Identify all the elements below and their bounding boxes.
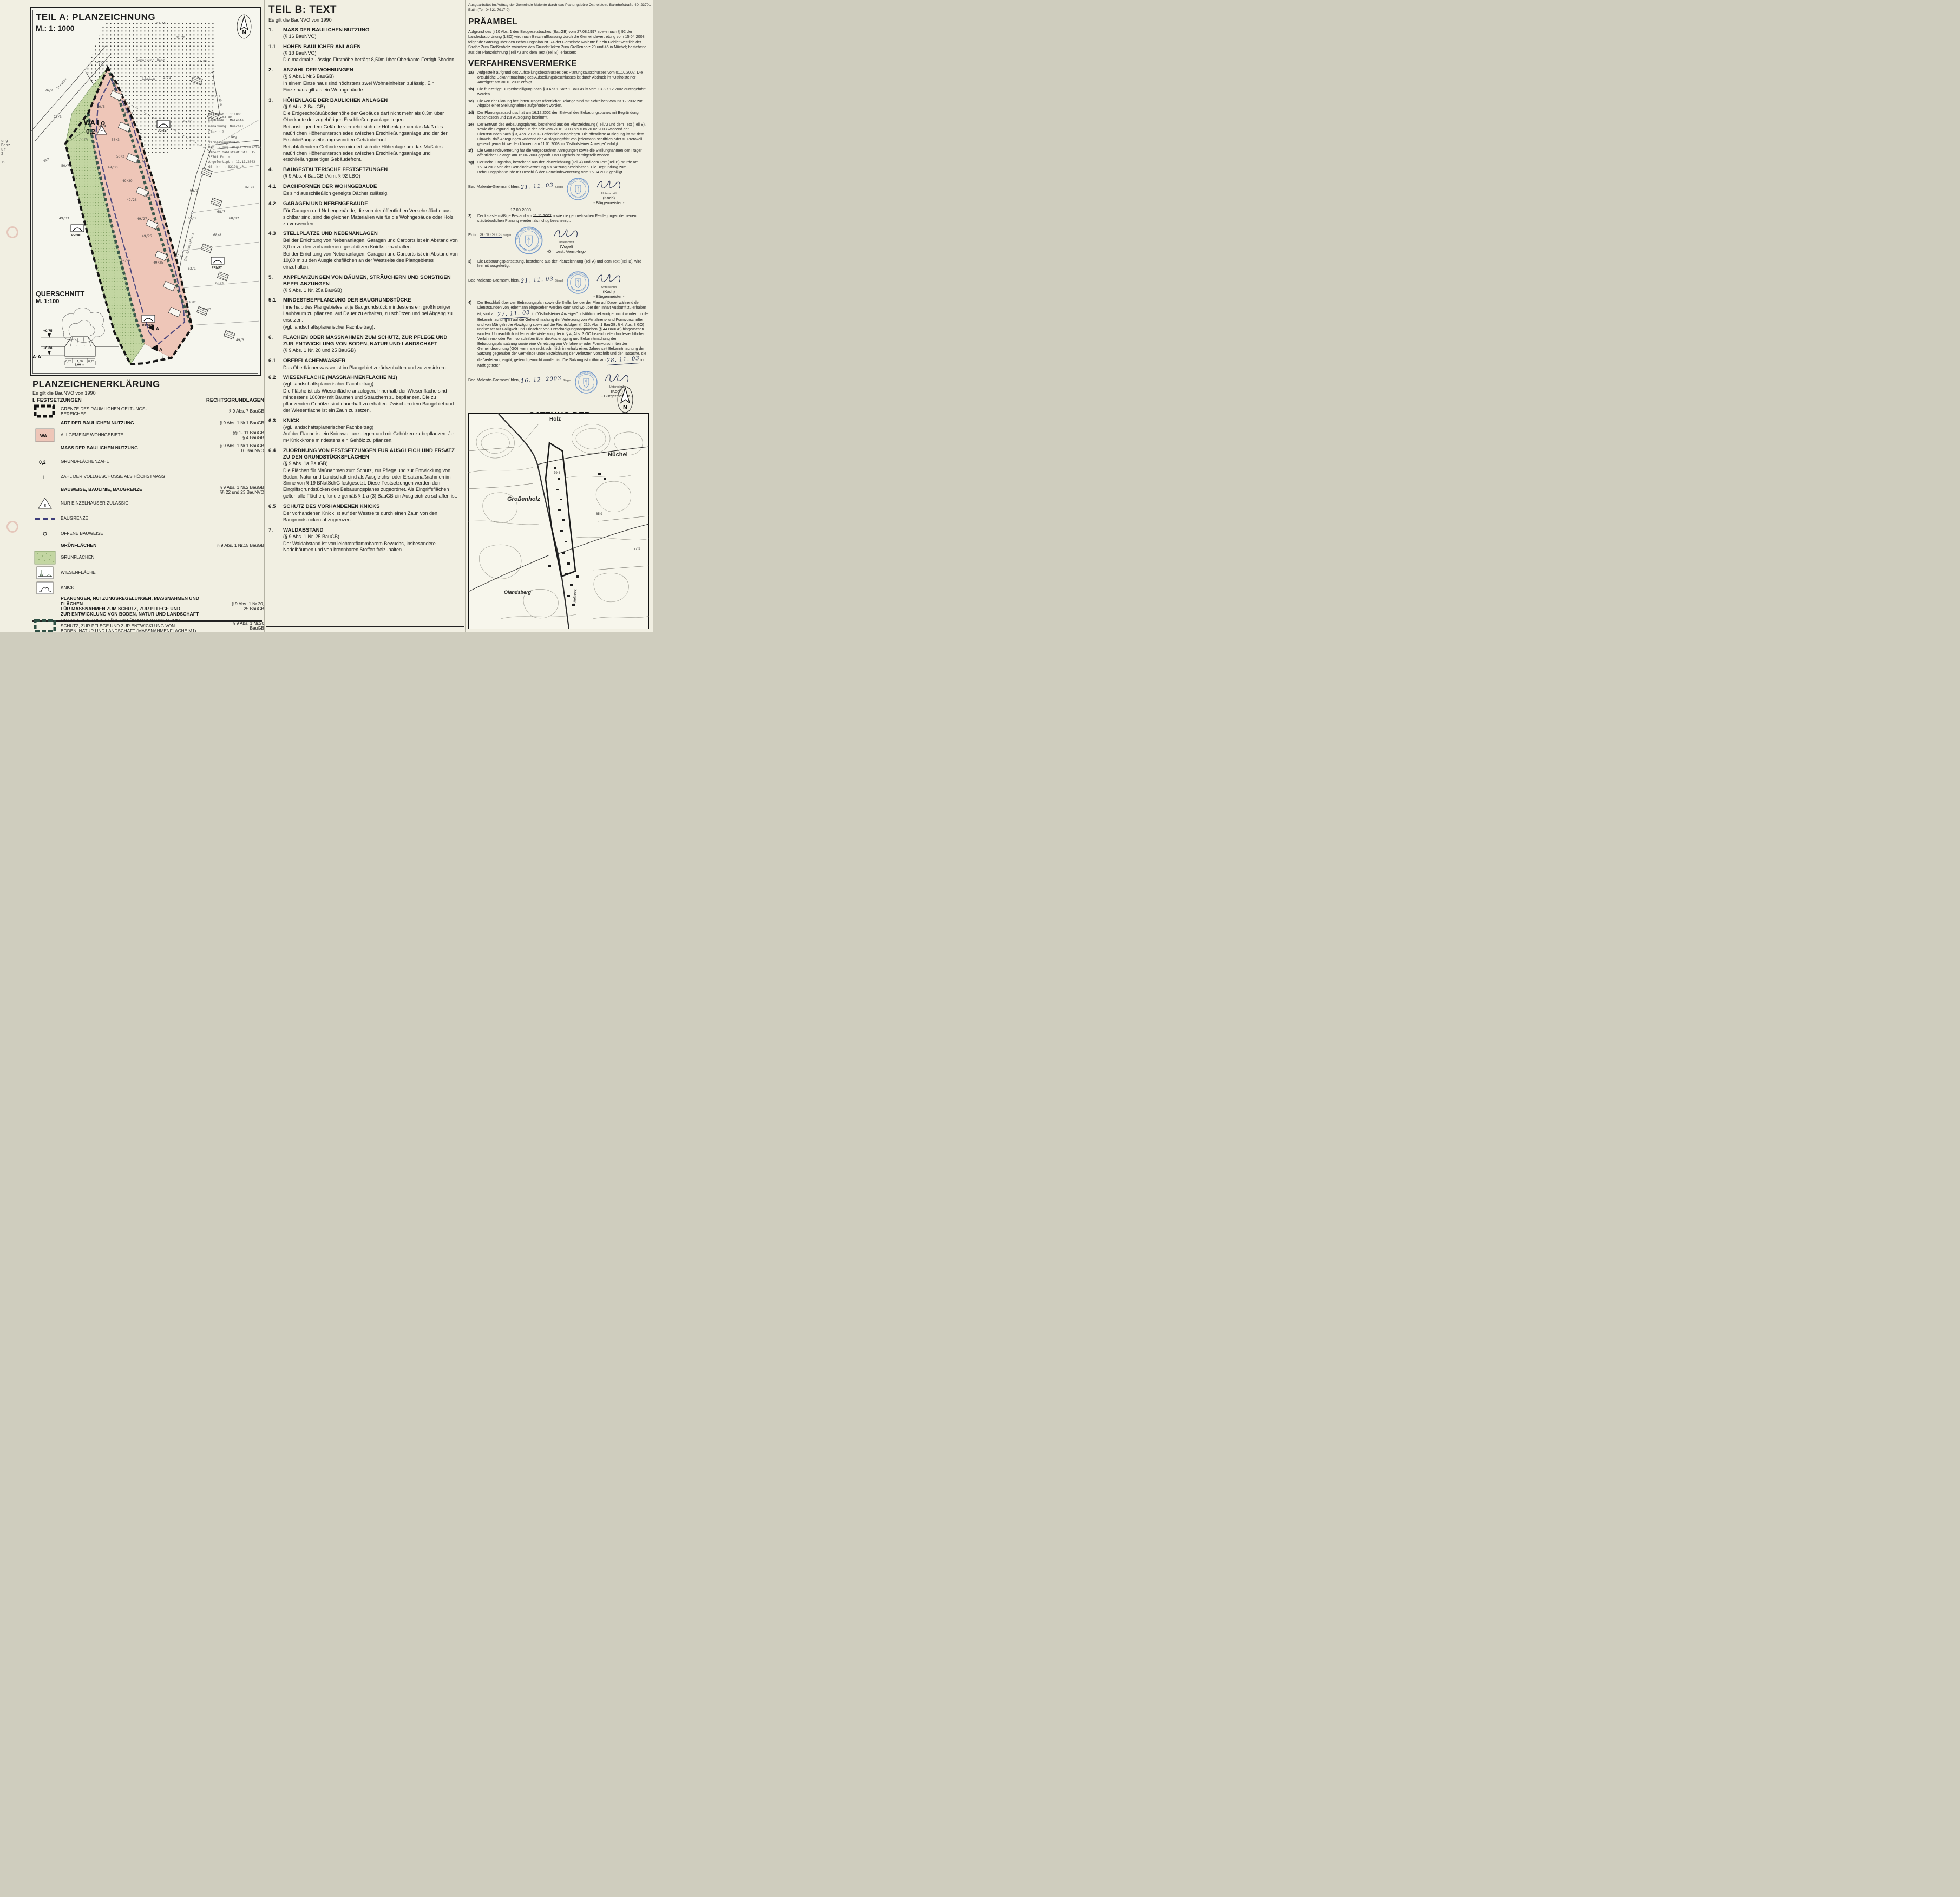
section-number: 6.5	[268, 503, 283, 524]
section-legal-ref: (§ 9 Abs. 4 BauGB i.V.m. § 92 LBO)	[283, 173, 459, 180]
section-body: Der Waldabstand ist von leichtentflammba…	[283, 541, 459, 554]
legend-label: ALLGEMEINE WOHNGEBIETE	[61, 433, 204, 437]
binder-hole	[6, 226, 18, 238]
section-legal-ref: (§ 18 BauNVO)	[283, 50, 459, 57]
legend-item-row: UMGRENZUNG VON FLÄCHEN FÜR MASSNAHMEN ZU…	[32, 618, 264, 632]
section-legal-ref: (§ 16 BauNVO)	[283, 34, 459, 40]
legend-label: GRÜNFLÄCHEN	[61, 543, 204, 548]
legend-legal-ref: § 9 Abs. 1 Nr.20 BauGB	[204, 621, 264, 631]
section-body: Die Fläche ist als Wiesenfläche anzulege…	[283, 388, 459, 414]
right-block-h1: PRÄAMBEL	[468, 17, 651, 27]
teil-b-intro: Es gilt die BauNVO von 1990	[268, 17, 459, 23]
gruen-symbol-icon	[32, 551, 61, 565]
legend-item-row: ENUR EINZELHÄUSER ZULÄSSIG	[32, 496, 264, 511]
official-stamp-malente: GEMEINDE MALENTE KREIS OSTHOLSTEIN	[566, 271, 590, 295]
map-place-label: Großenholz	[507, 496, 541, 502]
svg-text:N: N	[623, 404, 627, 411]
legend-label: NUR EINZELHÄUSER ZULÄSSIG	[61, 501, 204, 506]
map-frame	[468, 413, 649, 629]
section-body: Der vorhandenen Knick ist auf der Westse…	[283, 511, 459, 524]
legend-header-row: ART DER BAULICHEN NUTZUNG§ 9 Abs. 1 Nr.1…	[32, 420, 264, 427]
plan-info-line: 23701 Eutin	[208, 155, 230, 159]
elevation-label: 83.15	[156, 22, 166, 25]
section-heading: KNICK	[283, 418, 459, 424]
section-heading: FLÄCHEN ODER MASSNAHMEN ZUM SCHUTZ, ZUR …	[283, 335, 459, 348]
teil-b-section: 4.BAUGESTALTERISCHE FESTSETZUNGEN(§ 9 Ab…	[268, 167, 459, 180]
section-heading: ZUORDNUNG VON FESTSETZUNGEN FÜR AUSGLEIC…	[283, 448, 459, 461]
section-body: (vgl. landschaftsplanerischer Fachbeitra…	[283, 324, 459, 331]
section-body: Die Flächen für Maßnahmen zum Schutz, zu…	[283, 468, 459, 500]
section-legal-ref: (§ 9 Abs. 1 Nr. 25 BauGB)	[283, 534, 459, 540]
plan-text-label: 0,2	[86, 128, 95, 135]
svg-text:PRIVAT: PRIVAT	[158, 130, 168, 133]
handwritten-date: 21. 11. 03	[521, 182, 554, 191]
svg-text:DIPL.-ING. JENS VOGEL: DIPL.-ING. JENS VOGEL	[518, 243, 540, 252]
teil-b-section: 4.3STELLPLÄTZE UND NEBENANLAGENBei der E…	[268, 231, 459, 270]
section-number: 6.1	[268, 358, 283, 371]
legend-subtitle: Es gilt die BauNVO von 1990	[32, 390, 264, 396]
svg-text:KREIS OSTHOLSTEIN: KREIS OSTHOLSTEIN	[570, 192, 587, 199]
svg-text:WA: WA	[40, 434, 47, 439]
legend-item-row: WIESENFLÄCHE	[32, 566, 264, 580]
map-place-label: 85,9	[596, 513, 602, 516]
section-number: 6.	[268, 335, 283, 354]
legend-label: GRENZE DES RÄUMLICHEN GELTUNGS- BEREICHE…	[61, 407, 204, 417]
sig-place: Bad Malente-Gremsmühlen,	[468, 184, 520, 189]
legend-item-row: OFFENE BAUWEISE	[32, 527, 264, 541]
map-place-label: 77,3	[634, 547, 640, 551]
elevation-label: 82.95	[245, 186, 254, 189]
parcel-label: 50/6	[80, 138, 88, 141]
knick-bush-sketch	[62, 308, 104, 346]
section-body: Bei der Errichtung von Nebenanlagen, Gar…	[283, 238, 459, 251]
parcel-label: 49/3	[236, 338, 244, 342]
right-block-h1: VERFAHRENSVERMERKE	[468, 59, 651, 69]
tI-symbol-icon: I	[32, 470, 61, 484]
legend-header-row: MASS DER BAULICHEN NUTZUNG§ 9 Abs. 1 Nr.…	[32, 443, 264, 454]
parcel-label: 67/1	[163, 76, 171, 80]
section-number: 4.1	[268, 184, 283, 197]
knick-symbol-icon	[32, 581, 61, 595]
legend-header-row: GRÜNFLÄCHEN§ 9 Abs. 1 Nr.15 BauGB	[32, 542, 264, 550]
elevation-label: 81.88	[198, 60, 207, 63]
svg-text:A: A	[159, 347, 162, 352]
teil-b-section: 2.ANZAHL DER WOHNUNGEN(§ 9 Abs.1 Nr.6 Ba…	[268, 67, 459, 93]
section-heading: WIESENFLÄCHE (MASSNAHMENFLÄCHE M1)	[283, 375, 459, 381]
column-divider-2	[465, 0, 466, 632]
column-divider	[264, 0, 265, 632]
section-body: Die maximal zulässige Firsthöhe beträgt …	[283, 57, 459, 63]
section-number: 3.	[268, 97, 283, 163]
handwritten-date: 16. 12. 2003	[521, 376, 562, 384]
legend-label: MASS DER BAULICHEN NUTZUNG	[61, 446, 204, 451]
svg-text:PRIVAT: PRIVAT	[71, 234, 82, 237]
elevation-label: 82.70	[176, 36, 185, 40]
binder-hole	[6, 521, 18, 533]
signature-squiggle	[603, 371, 631, 384]
teil-b-section: 6.FLÄCHEN ODER MASSNAHMEN ZUM SCHUTZ, ZU…	[268, 335, 459, 354]
right-block-vermerk: 1g)Der Bebauungsplan, bestehend aus der …	[468, 161, 651, 175]
parcel-label: 50/7	[61, 164, 69, 168]
svg-text:N: N	[242, 30, 246, 36]
parcel-label: 49/25	[153, 261, 163, 265]
legend-label: ART DER BAULICHEN NUTZUNG	[61, 421, 204, 426]
legend-legal-ref: §§ 1- 11 BauGB § 4 BauGB	[204, 430, 264, 441]
svg-text:0,75: 0,75	[88, 360, 94, 363]
section-heading: STELLPLÄTZE UND NEBENANLAGEN	[283, 231, 459, 237]
circ-symbol-icon	[32, 527, 61, 541]
map-place-label: Nüchel	[608, 452, 628, 458]
legend: PLANZEICHENERKLÄRUNG Es gilt die BauNVO …	[32, 379, 264, 632]
legend-legal-ref: § 9 Abs. 1 Nr.15 BauGB	[204, 543, 264, 548]
legend-label: PLANUNGEN, NUTZUNGSREGELUNGEN, MASSNAHME…	[61, 596, 204, 618]
siegel-caption: Siegel	[555, 186, 563, 189]
parcel-label: 49/27	[137, 217, 147, 221]
section-heading: OBERFLÄCHENWASSER	[283, 358, 459, 364]
section-number: 1.	[268, 27, 283, 40]
svg-text:+0,75: +0,75	[43, 329, 53, 333]
parcel-label: 63/1	[188, 267, 196, 271]
svg-text:A: A	[156, 326, 159, 331]
signature-squiggle	[552, 227, 580, 240]
legend-label: GRUNDFLÄCHENZAHL	[61, 459, 204, 464]
right-block-vermerk: 1d)Der Planungsausschuss hat am 16.12.20…	[468, 111, 651, 121]
parcel-label: 68/8	[213, 233, 221, 237]
teil-b-section: 4.1DACHFORMEN DER WOHNGEBÄUDEEs sind aus…	[268, 184, 459, 197]
section-heading: MINDESTBEPFLANZUNG DER BAUGRUNDSTÜCKE	[283, 297, 459, 304]
parcel-label: 68/12	[229, 217, 239, 220]
right-block-vermerk: 1e)Der Entwurf des Bebauungsplanes, best…	[468, 123, 651, 147]
parcel-label: 49/32	[121, 259, 131, 263]
parcel-label: 50/2	[116, 155, 124, 159]
section-heading: HÖHENLAGE DER BAULICHEN ANLAGEN	[283, 97, 459, 104]
handwritten-date: 21. 11. 03	[521, 276, 554, 284]
svg-text:1,50: 1,50	[77, 360, 83, 363]
right-block-sig: Bad Malente-Gremsmühlen, 21. 11. 03 Sieg…	[468, 271, 651, 299]
svg-text:KREIS OSTHOLSTEIN: KREIS OSTHOLSTEIN	[570, 286, 587, 292]
map-place-label: Olandsberg	[504, 590, 532, 595]
parcel-label: 68/3	[215, 282, 224, 285]
legend-legal-ref: § 9 Abs. 1 Nr.20, 25 BauGB	[204, 601, 264, 612]
signer-role: -Öff. best. Verm.-Ing.-	[547, 249, 586, 254]
right-block-sig: Eutin, 30.10.2003 Siegel ÖFFENTL. BEST. …	[468, 226, 651, 258]
parcel-label: 50/4	[98, 125, 106, 128]
section-body: Bei abfallendem Gelände vermindert sich …	[283, 144, 459, 163]
legend-header-row: BAUWEISE, BAULINIE, BAUGRENZE§ 9 Abs. 1 …	[32, 485, 264, 495]
section-body: Bei der Errichtung von Nebenanlagen, Gar…	[283, 251, 459, 271]
map-place-label: Holz	[549, 416, 561, 422]
svg-text:KREIS OSTHOLSTEIN: KREIS OSTHOLSTEIN	[578, 385, 595, 392]
section-body: Innerhalb des Plangebietes ist je Baugru…	[283, 304, 459, 324]
right-block-vermerk: 1c)Die von der Planung berührten Träger …	[468, 100, 651, 109]
teil-b-section: 1.MASS DER BAULICHEN NUTZUNG(§ 16 BauNVO…	[268, 27, 459, 40]
siegel-caption: Siegel	[563, 379, 571, 382]
parcel-label: 62/2	[95, 61, 103, 64]
section-number: 4.	[268, 167, 283, 180]
section-number: 7.	[268, 527, 283, 553]
legend-label: OFFENE BAUWEISE	[61, 531, 204, 536]
parcel-label: 67/2	[183, 120, 192, 123]
right-block-vermerk: 1f)Die Gemeindevertretung hat die vorgeb…	[468, 149, 651, 159]
legend-item-row: GRÜNFLÄCHEN	[32, 551, 264, 565]
section-number: 1.1	[268, 44, 283, 64]
legend-title: PLANZEICHENERKLÄRUNG	[32, 379, 264, 390]
section-body: Das Oberflächenwasser ist im Plangebiet …	[283, 365, 459, 371]
section-number: 6.2	[268, 375, 283, 414]
legend-item-row: KNICK	[32, 581, 264, 595]
sig-place: Bad Malente-Gremsmühlen,	[468, 278, 520, 283]
teil-b-section: 1.1HÖHEN BAULICHER ANLAGEN(§ 18 BauNVO)D…	[268, 44, 459, 64]
elevation-label: 83.75	[136, 160, 146, 163]
margin-label: ur 2	[1, 147, 5, 156]
section-heading: ANPFLANZUNGEN VON BÄUMEN, STRÄUCHERN UND…	[283, 274, 459, 287]
legend-label: ZAHL DER VOLLGESCHOSSE ALS HÖCHSTMASS	[61, 474, 204, 479]
plan-info-line: Gemarkung: Nuechel	[208, 125, 244, 128]
section-legal-ref: (§ 9 Abs. 1 Nr. 25a BauGB)	[283, 287, 459, 294]
section-legal-ref: (§ 9 Abs.1 Nr.6 BauGB)	[283, 74, 459, 80]
t02-symbol-icon: 0,2	[32, 455, 61, 469]
plan-text-label: Flur 1	[142, 75, 155, 80]
parcel-label: 68/7	[217, 210, 225, 214]
legend-item-row: IZAHL DER VOLLGESCHOSSE ALS HÖCHSTMASS	[32, 470, 264, 484]
section-body: Bei ansteigendem Gelände vermehrt sich d…	[283, 124, 459, 143]
baugrenze-symbol-icon	[32, 512, 61, 526]
legend-item-row: BAUGRENZE	[32, 512, 264, 526]
section-legal-ref: (§ 9 Abs. 2 BauGB)	[283, 104, 459, 110]
parcel-label: 49/30	[108, 166, 118, 169]
wa-symbol-icon: WA	[32, 428, 61, 442]
section-legal-ref: (§ 9 Abs. 1 Nr. 20 und 25 BauGB)	[283, 348, 459, 354]
right-block-credit: Ausgearbeitet im Auftrag der Gemeinde Ma…	[468, 3, 651, 13]
teil-b-section: 5.ANPFLANZUNGEN VON BÄUMEN, STRÄUCHERN U…	[268, 274, 459, 294]
svg-text:I: I	[43, 475, 45, 480]
parcel-label: 66/1	[190, 189, 198, 193]
parcel-label: 65/4	[175, 254, 183, 258]
section-heading: ANZAHL DER WOHNUNGEN	[283, 67, 459, 74]
right-block-sig: Bad Malente-Gremsmühlen, 21. 11. 03 Sieg…	[468, 177, 651, 205]
parcel-label: 49/26	[142, 234, 152, 238]
legend-label: WIESENFLÄCHE	[61, 570, 204, 575]
dimension-lines: 0,75 1,50 0,75 3,00 m	[65, 358, 95, 367]
right-block-vermerk: 4)Der Beschluß über den Bebauungsplan so…	[468, 301, 651, 369]
right-block-vermerk: 1b)Die frühzeitige Bürgerbeteiligung nac…	[468, 88, 651, 97]
section-body: Auf der Fläche ist ein Knickwall anzuleg…	[283, 431, 459, 444]
wiese-symbol-icon	[32, 566, 61, 580]
parcel-label: 68/11	[211, 95, 221, 99]
plan-info-line: Vermessungsbuero	[208, 141, 240, 145]
section-number: 4.3	[268, 231, 283, 270]
right-block-vermerk: 1a)Aufgestellt aufgrund des Aufstellungs…	[468, 71, 651, 86]
teil-b-section: 4.2GARAGEN UND NEBENGEBÄUDEFür Garagen u…	[268, 201, 459, 227]
signer-name: (Koch)	[593, 195, 624, 200]
section-legal-ref: (§ 9 Abs. 1a BauGB)	[283, 461, 459, 467]
sig-place: Eutin,	[468, 232, 478, 237]
legend-legal-ref: § 9 Abs. 1 Nr.1 BauGB 16 BauNVO	[204, 443, 264, 454]
svg-text:0,2: 0,2	[39, 460, 46, 465]
teil-b-section: 6.1OBERFLÄCHENWASSERDas Oberflächenwasse…	[268, 358, 459, 371]
querschnitt-drawing: +0,75 +0,00 A-A 0,75 1,50 0,75 3,00 m	[31, 304, 123, 370]
section-heading: MASS DER BAULICHEN NUTZUNG	[283, 27, 459, 34]
legend-item-row: WAALLGEMEINE WOHNGEBIETE§§ 1- 11 BauGB §…	[32, 428, 264, 442]
section-body: In einem Einzelhaus sind höchstens zwei …	[283, 81, 459, 94]
elevation-label: 83.30	[222, 116, 232, 119]
sig-date: 30.10.2003	[480, 232, 502, 238]
section-body: Für Garagen und Nebengebäude, die von de…	[283, 208, 459, 227]
legend-label: BAUGRENZE	[61, 516, 204, 521]
svg-text:3,00 m: 3,00 m	[75, 364, 84, 367]
elevation-label: 79.82	[187, 301, 196, 304]
plan-info-line: Gemeinde : Malente	[208, 119, 244, 122]
plan-info-line: Albert Mahlstedt Str. 15	[208, 151, 255, 154]
legend-header-row: PLANUNGEN, NUTZUNGSREGELUNGEN, MASSNAHME…	[32, 596, 264, 618]
uebersichtsplan-map: HolzGroßenholzOlandsbergNüchelSielbeck85…	[468, 413, 649, 629]
signer-name: (Vogel)	[547, 244, 586, 249]
plan-text-label: Weg	[231, 135, 238, 139]
level-marks: +0,75 +0,00 A-A	[32, 329, 71, 359]
parcel-label: 76/3	[54, 115, 62, 119]
teil-b-title: TEIL B: TEXT	[268, 4, 459, 16]
parcel-label: 49/33	[59, 217, 69, 220]
section-number: 2.	[268, 67, 283, 93]
svg-text:E: E	[100, 130, 103, 134]
querschnitt-title: QUERSCHNITT	[36, 290, 84, 298]
siegel-caption: Siegel	[555, 279, 563, 283]
svg-text:E: E	[44, 504, 47, 508]
legend-item-row: 0,2GRUNDFLÄCHENZAHL	[32, 455, 264, 469]
elevation-label: 80.13	[202, 308, 211, 311]
section-number: 6.3	[268, 418, 283, 444]
section-heading: BAUGESTALTERISCHE FESTSETZUNGEN	[283, 167, 459, 173]
legend-left-header: I. FESTSETZUNGEN	[32, 397, 82, 403]
teil-b-section: 6.2WIESENFLÄCHE (MASSNAHMENFLÄCHE M1)(vg…	[268, 375, 459, 414]
svg-text:0,75: 0,75	[65, 360, 71, 363]
svg-text:PRIVAT: PRIVAT	[212, 266, 222, 270]
plan-info-line: GB- Nr. : 02198 LP	[208, 165, 244, 169]
sig-place: Bad Malente-Gremsmühlen,	[468, 377, 520, 382]
official-stamp-malente: GEMEINDE MALENTE KREIS OSTHOLSTEIN	[574, 370, 598, 394]
signer-role: - Bürgermeister -	[593, 294, 624, 299]
official-stamp-vogel: ÖFFENTL. BEST. VERMESSUNGSING. DIPL.-ING…	[514, 226, 543, 255]
legend-legal-ref: § 9 Abs. 7 BauGB	[204, 409, 264, 414]
teilb-bottom-rule	[266, 626, 464, 627]
margin-label: 79	[1, 160, 5, 165]
svg-text:PRIVAT: PRIVAT	[142, 324, 153, 328]
plan-info-line: Angefertigt : 11.11.2002	[208, 160, 255, 164]
svg-text:+0,00: +0,00	[43, 346, 53, 350]
section-number: 4.2	[268, 201, 283, 227]
legend-label: GRÜNFLÄCHEN	[61, 555, 204, 560]
section-body: Die Erdgeschoßfußbodenhöhe der Gebäude d…	[283, 110, 459, 123]
teil-b-section: 6.5SCHUTZ DES VORHANDENEN KNICKSDer vorh…	[268, 503, 459, 524]
teil-b: TEIL B: TEXT Es gilt die BauNVO von 1990…	[268, 4, 459, 557]
right-block-p: Aufgrund des § 10 Abs. 1 des Baugesetzbu…	[468, 29, 651, 55]
legend-label: KNICK	[61, 585, 204, 590]
parcel-label: 49/29	[122, 179, 133, 183]
parcel-label: 50/5	[97, 105, 105, 109]
legend-right-header: RECHTSGRUNDLAGEN	[206, 397, 264, 403]
etri-symbol-icon: E	[32, 496, 61, 511]
section-body: Es sind ausschließlich geneigte Dächer z…	[283, 191, 459, 197]
teil-b-section: 6.3KNICK(vgl. landschaftsplanerischer Fa…	[268, 418, 459, 444]
section-heading: HÖHEN BAULICHER ANLAGEN	[283, 44, 459, 50]
parcel-label: 49/28	[127, 198, 137, 202]
legend-label: UMGRENZUNG VON FLÄCHEN FÜR MASSNAHMEN ZU…	[61, 618, 204, 632]
teil-b-section: 6.4ZUORDNUNG VON FESTSETZUNGEN FÜR AUSGL…	[268, 448, 459, 500]
section-number: 6.4	[268, 448, 283, 500]
legend-label: BAUWEISE, BAULINIE, BAUGRENZE	[61, 487, 204, 493]
siegel-caption: Siegel	[503, 234, 511, 237]
elevation-label: 83.85	[145, 194, 154, 197]
parcel-label: 65/3	[188, 217, 196, 220]
section-heading: SCHUTZ DES VORHANDENEN KNICKS	[283, 503, 459, 510]
right-block-vermerk: 2)Der katastermäßige Bestand am 11.11.20…	[468, 214, 651, 224]
signer-role: - Bürgermeister -	[593, 200, 624, 205]
signer-name: (Koch)	[593, 289, 624, 294]
section-legal-ref: (vgl. landschaftsplanerischer Fachbeitra…	[283, 424, 459, 431]
official-stamp-malente: GEMEINDE MALENTE KREIS OSTHOLSTEIN	[566, 177, 590, 201]
elevation-label: 83.22	[124, 112, 133, 115]
map-place-label: 79,4	[554, 472, 560, 475]
right-block-vermerk: 3)Die Bebauungsplansatzung, bestehend au…	[468, 260, 651, 270]
section-heading: DACHFORMEN DER WOHNGEBÄUDE	[283, 184, 459, 190]
section-number: 5.1	[268, 297, 283, 330]
legend-legal-ref: § 9 Abs. 1 Nr.2 BauGB §§ 22 und 23 BauNV…	[204, 485, 264, 495]
knick-mound	[41, 337, 119, 356]
grenze-symbol-icon	[32, 404, 61, 418]
legend-item-row: GRENZE DES RÄUMLICHEN GELTUNGS- BEREICHE…	[32, 404, 264, 418]
bebauungsplan-sheet: ung Benzur 279	[0, 0, 653, 632]
teil-b-section: 5.1MINDESTBEPFLANZUNG DER BAUGRUNDSTÜCKE…	[268, 297, 459, 330]
svg-text:A-A: A-A	[32, 354, 41, 359]
section-heading: WALDABSTAND	[283, 527, 459, 534]
section-legal-ref: (vgl. landschaftsplanerischer Fachbeitra…	[283, 381, 459, 388]
parcel-label: 76/2	[45, 89, 53, 93]
signature-squiggle	[595, 178, 623, 191]
map-north-arrow-icon: N	[616, 385, 634, 414]
right-block-cdate: 17.09.2003	[510, 207, 651, 212]
teil-b-section: 3.HÖHENLAGE DER BAULICHEN ANLAGEN(§ 9 Ab…	[268, 97, 459, 163]
legend-legal-ref: § 9 Abs. 1 Nr.1 BauGB	[204, 421, 264, 426]
plan-text-label: Gemarkung Benz	[136, 58, 165, 62]
section-heading: GARAGEN UND NEBENGEBÄUDE	[283, 201, 459, 207]
m1-symbol-icon	[32, 619, 61, 632]
section-number: 5.	[268, 274, 283, 294]
teil-a-scale: M.: 1: 1000	[36, 24, 75, 32]
plan-info-line: Flur : 2	[208, 130, 224, 134]
signature-squiggle	[595, 272, 623, 285]
parcel-label: 50/3	[112, 138, 120, 142]
plan-info-line: Dipl.- Ing. Vogel & Uliczka	[208, 146, 261, 149]
teil-b-section: 7.WALDABSTAND(§ 9 Abs. 1 Nr. 25 BauGB)De…	[268, 527, 459, 553]
teil-a-title: TEIL A: PLANZEICHNUNG	[36, 12, 155, 23]
margin-label: ung Benz	[1, 139, 10, 147]
